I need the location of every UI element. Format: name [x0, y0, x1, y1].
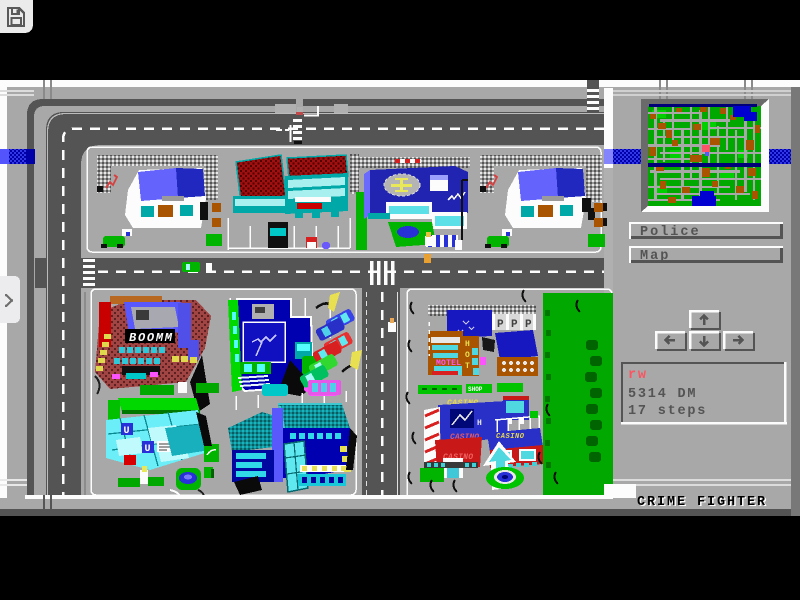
svg-text:Police: Police [640, 225, 701, 240]
svg-text:CASINO: CASINO [496, 433, 525, 441]
svg-text:P: P [497, 319, 504, 331]
svg-text:BOOMM: BOOMM [129, 331, 173, 345]
svg-text:P: P [511, 319, 518, 331]
svg-text:17 steps: 17 steps [628, 404, 707, 419]
svg-text:CRIME FIGHTER: CRIME FIGHTER [637, 495, 767, 510]
svg-text:rw: rw [628, 368, 648, 383]
svg-text:U: U [124, 426, 130, 437]
svg-text:H: H [465, 340, 470, 349]
svg-text:P: P [525, 319, 532, 331]
svg-text:SHOP: SHOP [468, 386, 483, 393]
svg-text:5314 DM: 5314 DM [628, 387, 697, 402]
svg-text:U: U [145, 444, 151, 455]
svg-text:Map: Map [640, 249, 670, 264]
svg-text:H: H [477, 419, 482, 428]
svg-text:O: O [465, 351, 470, 360]
svg-text:T: T [465, 362, 470, 371]
